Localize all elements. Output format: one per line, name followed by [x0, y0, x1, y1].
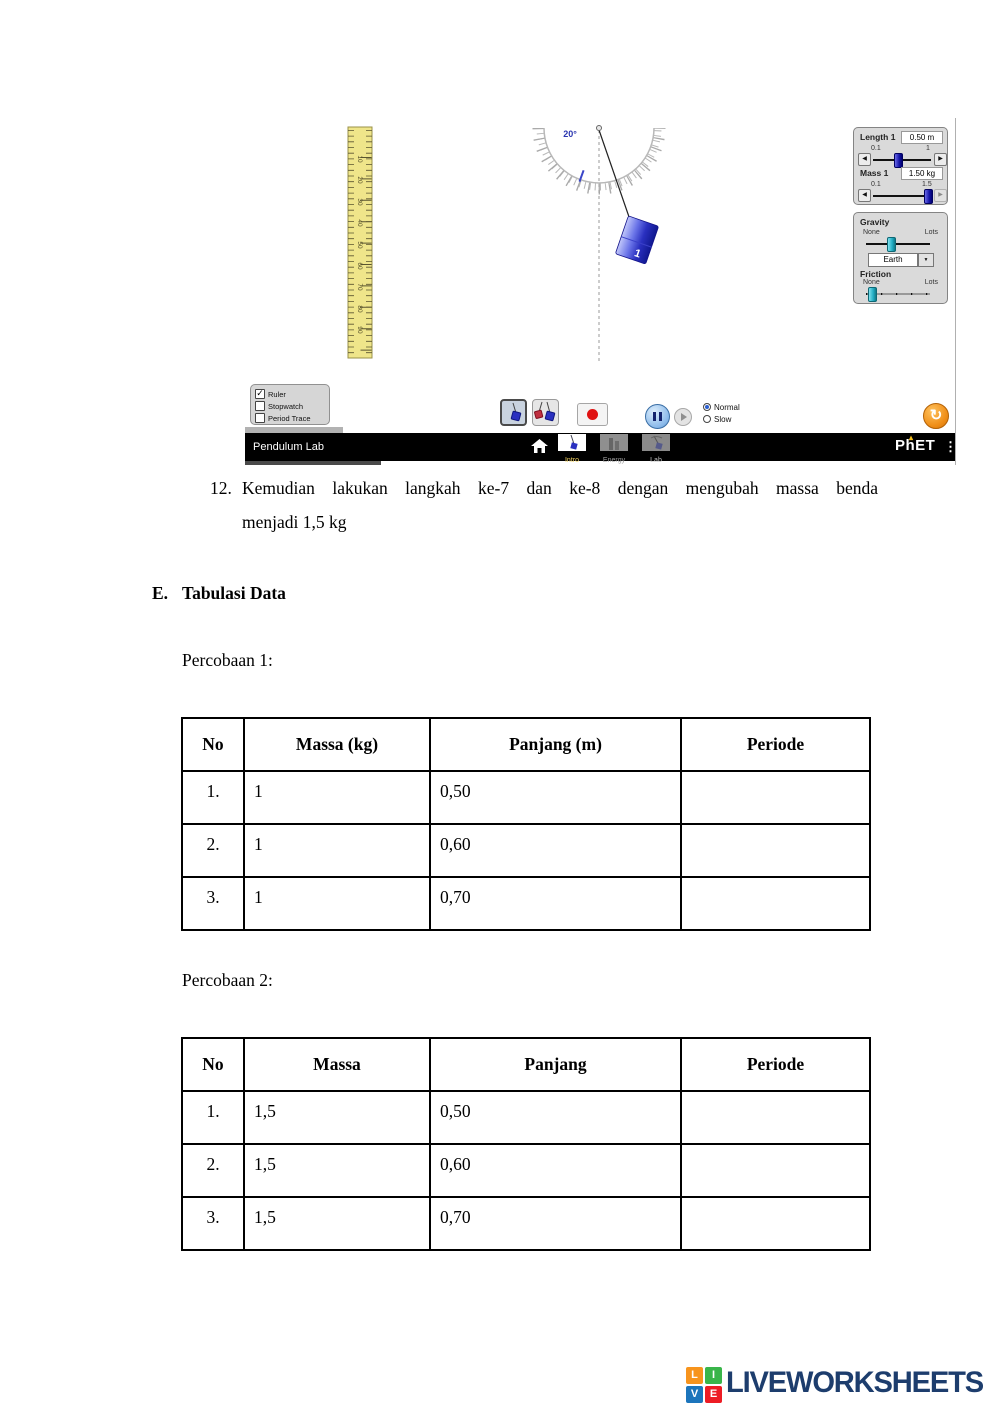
sim-navbar: Pendulum Lab Intro Energy [245, 433, 955, 461]
friction-slider-handle[interactable] [868, 287, 877, 302]
ruler-number: 20 [356, 176, 363, 184]
home-icon[interactable] [531, 439, 548, 454]
header-no: No [182, 1038, 244, 1091]
speed-slow-radio[interactable] [703, 415, 711, 423]
table-row: 3. 1 0,70 [182, 877, 870, 930]
pause-button[interactable] [645, 404, 670, 429]
ruler-number: 30 [356, 198, 363, 206]
length-slider-handle[interactable] [894, 153, 903, 168]
tab-lab[interactable]: Lab [642, 434, 670, 464]
cell-no: 3. [182, 877, 244, 930]
friction-label: Friction [860, 269, 891, 279]
experiment1-caption: Percobaan 1: [182, 649, 273, 671]
table-row: 1. 1 0,50 [182, 771, 870, 824]
ruler-checkbox[interactable]: ✓ [255, 389, 265, 399]
header-panjang: Panjang [430, 1038, 681, 1091]
liveworksheets-wordmark: LIVEWORKSHEETS [726, 1366, 983, 1400]
header-massa: Massa [244, 1038, 430, 1091]
experiment2-caption: Percobaan 2: [182, 969, 273, 991]
cell-no: 1. [182, 1091, 244, 1144]
one-pendulum-icon [502, 401, 525, 424]
two-pendula-icon [533, 400, 558, 425]
mass-value: 1.50 kg [901, 167, 943, 180]
ruler-number: 40 [356, 219, 363, 227]
ruler-number: 50 [356, 241, 363, 249]
item12-line2: menjadi 1,5 kg [242, 511, 347, 533]
cell-no: 2. [182, 1144, 244, 1197]
cell-massa: 1,5 [244, 1144, 430, 1197]
ruler-tool[interactable]: 10 20 30 40 50 60 70 80 90 [348, 127, 372, 358]
scrollbar-fragment-bottom [245, 461, 381, 465]
sim-scene: 10 20 30 40 50 60 70 80 90 [245, 118, 955, 433]
item12-line1: Kemudian lakukan langkah ke-7 dan ke-8 d… [242, 477, 878, 499]
phet-logo-text: PhET [895, 437, 935, 454]
length-increment-button[interactable]: ▶ [934, 153, 947, 166]
ruler-number: 60 [356, 262, 363, 270]
ruler-number: 90 [356, 326, 363, 334]
period-trace-checkbox-row[interactable]: Period Trace [255, 412, 329, 424]
tab-intro-label: Intro [558, 457, 586, 464]
cell-massa: 1,5 [244, 1091, 430, 1144]
length-max-label: 1 [926, 145, 930, 152]
stopwatch-checkbox-label: Stopwatch [268, 402, 303, 411]
mass-slider-track[interactable] [873, 195, 931, 197]
table-row: 2. 1,5 0,60 [182, 1144, 870, 1197]
gravity-body-select[interactable]: Earth [868, 253, 918, 267]
logo-square-i: I [705, 1367, 722, 1384]
cell-panjang: 0,60 [430, 1144, 681, 1197]
length-label: Length 1 [860, 132, 895, 142]
speed-normal-option[interactable]: Normal [703, 402, 740, 412]
cell-periode[interactable] [681, 877, 870, 930]
phet-spark-icon: ▴ [909, 433, 914, 442]
stopwatch-checkbox-row[interactable]: Stopwatch [255, 400, 329, 412]
header-periode: Periode [681, 1038, 870, 1091]
step-icon [681, 413, 687, 421]
gravity-friction-panel: Gravity None Lots Earth ▼ Friction None … [853, 212, 948, 304]
tab-energy-label: Energy [600, 457, 628, 464]
pendulum-mass[interactable]: 1 [615, 216, 658, 264]
cell-no: 3. [182, 1197, 244, 1250]
speed-normal-radio[interactable] [703, 403, 711, 411]
length-mass-panel: Length 1 0.50 m 0.1 1 ◀ ▶ Mass 1 1.50 kg… [853, 127, 948, 205]
mass-slider-handle[interactable] [924, 189, 933, 204]
header-periode: Periode [681, 718, 870, 771]
ruler-number: 10 [356, 155, 363, 163]
period-trace-checkbox[interactable] [255, 413, 265, 423]
phet-logo: PhET ▴ [895, 437, 935, 454]
speed-normal-label: Normal [714, 403, 740, 412]
mass-increment-button[interactable]: ▶ [934, 189, 947, 202]
pause-icon [653, 412, 662, 421]
stopwatch-checkbox[interactable] [255, 401, 265, 411]
tools-panel: ✓ Ruler Stopwatch Period Trace [250, 384, 330, 425]
cell-periode[interactable] [681, 1144, 870, 1197]
record-button[interactable] [577, 403, 608, 426]
logo-square-l: L [686, 1367, 703, 1384]
tab-energy-thumbnail [600, 434, 628, 451]
mass-min-label: 0.1 [871, 181, 881, 188]
cell-panjang: 0,60 [430, 824, 681, 877]
kebab-menu-icon[interactable]: ⋮ [944, 438, 957, 456]
cell-massa: 1 [244, 824, 430, 877]
cell-periode[interactable] [681, 1197, 870, 1250]
tab-lab-thumbnail [642, 434, 670, 451]
mass-label: Mass 1 [860, 168, 888, 178]
tab-lab-label: Lab [642, 457, 670, 464]
section-title: Tabulasi Data [182, 582, 286, 604]
two-pendula-button[interactable] [532, 399, 559, 426]
gravity-min-label: None [863, 229, 880, 236]
gravity-max-label: Lots [925, 229, 938, 236]
logo-square-e: E [705, 1386, 722, 1403]
item12-number: 12. [210, 477, 232, 499]
experiment1-table: No Massa (kg) Panjang (m) Periode 1. 1 0… [181, 717, 871, 931]
table-row: 2. 1 0,60 [182, 824, 870, 877]
length-decrement-button[interactable]: ◀ [858, 153, 871, 166]
sim-title: Pendulum Lab [253, 433, 324, 461]
ruler-number: 70 [356, 283, 363, 291]
cell-no: 1. [182, 771, 244, 824]
worksheet-page: 10 20 30 40 50 60 70 80 90 [0, 0, 999, 1412]
logo-square-v: V [686, 1386, 703, 1403]
phet-simulation-screenshot: 10 20 30 40 50 60 70 80 90 [245, 118, 956, 465]
cell-no: 2. [182, 824, 244, 877]
mass-max-label: 1.5 [922, 181, 932, 188]
mass-decrement-button[interactable]: ◀ [858, 189, 871, 202]
gravity-slider-handle[interactable] [887, 237, 896, 252]
length-value: 0.50 m [901, 131, 943, 144]
cell-periode[interactable] [681, 824, 870, 877]
tab-intro-thumbnail [558, 434, 586, 451]
section-letter: E. [152, 582, 168, 604]
tab-energy[interactable]: Energy [600, 434, 628, 464]
length-min-label: 0.1 [871, 145, 881, 152]
cell-panjang: 0,50 [430, 771, 681, 824]
cell-panjang: 0,70 [430, 877, 681, 930]
table-header-row: No Massa Panjang Periode [182, 1038, 870, 1091]
speed-slow-label: Slow [714, 415, 731, 424]
ruler-number: 80 [356, 305, 363, 313]
period-trace-checkbox-label: Period Trace [268, 414, 311, 423]
angle-readout: 20° [563, 129, 577, 139]
header-massa: Massa (kg) [244, 718, 430, 771]
table-header-row: No Massa (kg) Panjang (m) Periode [182, 718, 870, 771]
record-icon [587, 409, 598, 420]
pivot-point [597, 126, 602, 131]
liveworksheets-logo-icon: L I V E [686, 1367, 722, 1403]
header-panjang: Panjang (m) [430, 718, 681, 771]
cell-massa: 1 [244, 877, 430, 930]
friction-min-label: None [863, 279, 880, 286]
one-pendulum-button[interactable] [500, 399, 527, 426]
table-row: 1. 1,5 0,50 [182, 1091, 870, 1144]
reset-all-button[interactable]: ↻ [923, 403, 949, 429]
cell-periode[interactable] [681, 771, 870, 824]
cell-massa: 1,5 [244, 1197, 430, 1250]
cell-panjang: 0,70 [430, 1197, 681, 1250]
speed-slow-option[interactable]: Slow [703, 414, 731, 424]
tab-intro[interactable]: Intro [558, 434, 586, 464]
gravity-body-dropdown-button[interactable]: ▼ [918, 253, 934, 267]
cell-massa: 1 [244, 771, 430, 824]
cell-panjang: 0,50 [430, 1091, 681, 1144]
header-no: No [182, 718, 244, 771]
step-button[interactable] [674, 408, 692, 426]
friction-max-label: Lots [925, 279, 938, 286]
ruler-checkbox-label: Ruler [268, 390, 286, 399]
cell-periode[interactable] [681, 1091, 870, 1144]
table-row: 3. 1,5 0,70 [182, 1197, 870, 1250]
gravity-label: Gravity [860, 217, 889, 227]
experiment2-table: No Massa Panjang Periode 1. 1,5 0,50 2. … [181, 1037, 871, 1251]
ruler-checkbox-row[interactable]: ✓ Ruler [255, 388, 329, 400]
gravity-slider-track[interactable] [866, 243, 930, 245]
